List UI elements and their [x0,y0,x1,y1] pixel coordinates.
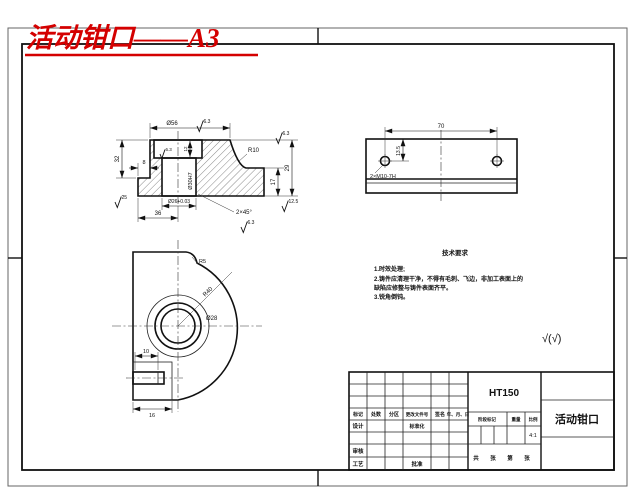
svg-text:6.3: 6.3 [283,131,290,137]
bore-label: Ø30H7 [188,172,194,189]
dim-bore: Ø26+0.03 [168,199,190,205]
rev-header: 更改文件号 [406,411,429,418]
tech-req-line: 3.锐角倒钝。 [374,293,409,301]
role-design: 设计 [352,422,364,430]
dim-slot-depth: 16 [149,413,155,419]
role-approve: 批准 [411,460,423,468]
svg-text:25: 25 [122,195,128,201]
chamfer-note: 2×45° [236,210,253,216]
scale-value: 4:1 [529,433,537,439]
dim-slot-width: 10 [143,349,149,355]
plate-view: 70 13.5 2×M10-7H [366,124,517,201]
svg-text:6.3: 6.3 [248,220,255,226]
rev-header: 处数 [370,411,382,418]
stage-header: 阶段标记 [478,416,496,423]
dim-base-width: 36 [155,211,162,217]
sheet-note: 共 张 第 张 [473,454,535,462]
role-standardization: 标准化 [408,423,424,430]
svg-text:12.5: 12.5 [289,199,299,205]
roughness-symbol-left: 25 [115,195,127,208]
rev-header: 标记 [352,411,363,418]
rev-header: 年、月、日 [447,411,470,418]
roughness-symbol-top-face: 6.3 [276,131,290,144]
rev-header: 签名 [434,411,445,418]
dim-total-height: 29 [285,164,291,171]
section-view: Ø56 6.3 6.3 R10 29 17 12.5 2×45° 6.3 [115,119,298,233]
stage-header: 比例 [529,416,538,423]
cad-drawing-window: 活动钳口——A3 Ø56 6.3 6.3 R10 [0,0,635,500]
title-block: 标记 处数 分区 更改文件号 签名 年、月、日 设计 标准化 审核 工艺 批准 … [349,372,614,470]
dim-counterbore-depth: 12 [183,146,188,152]
front-view: R40 R5 Ø28 10 16 [112,240,262,419]
dim-hole-offset: 13.5 [396,146,402,156]
material-label: HT150 [489,388,519,399]
bore-diameter-label: Ø28 [206,316,218,322]
tech-req-line: 1.时效处理; [374,265,405,273]
dim-flange-height: 17 [271,178,277,185]
page-title: 活动钳口——A3 [26,23,220,53]
engineering-drawing-canvas: 活动钳口——A3 Ø56 6.3 6.3 R10 [0,0,635,500]
outer-radius-label: R40 [202,286,214,298]
dim-top-diameter: Ø56 [166,121,178,127]
roughness-symbol-top: 6.3 [197,119,211,132]
dim-left-height: 32 [115,155,121,162]
hole-note: 2×M10-7H [370,174,396,180]
surface-finish-note: √(√) [542,333,561,345]
part-name: 活动钳口 [555,412,599,426]
roughness-symbol-bottom: 12.5 [282,199,298,212]
fillet-label: R10 [248,148,260,154]
front-fillet-label: R5 [199,259,206,265]
dim-hole-spacing: 70 [438,124,445,130]
svg-text:6.3: 6.3 [166,147,173,152]
svg-text:6.3: 6.3 [204,119,211,125]
tech-req-title: 技术要求 [442,248,469,257]
tech-requirements: 技术要求 1.时效处理; 2.铸件应清理干净，不得有毛刺、飞边，非加工表面上的 … [374,248,523,301]
roughness-symbol-counterbore: 6.3 [160,147,172,159]
dim-step-width: 8 [142,160,145,166]
rev-header: 分区 [389,411,399,418]
tech-req-line: 2.铸件应清理干净，不得有毛刺、飞边，非加工表面上的 [374,275,523,283]
role-process: 工艺 [352,460,364,468]
roughness-symbol-chamfer: 6.3 [241,220,255,233]
stage-header: 重量 [512,416,521,423]
role-check: 审核 [352,447,364,455]
tech-req-line: 缺陷应修整与铸件表面齐平。 [374,284,452,292]
